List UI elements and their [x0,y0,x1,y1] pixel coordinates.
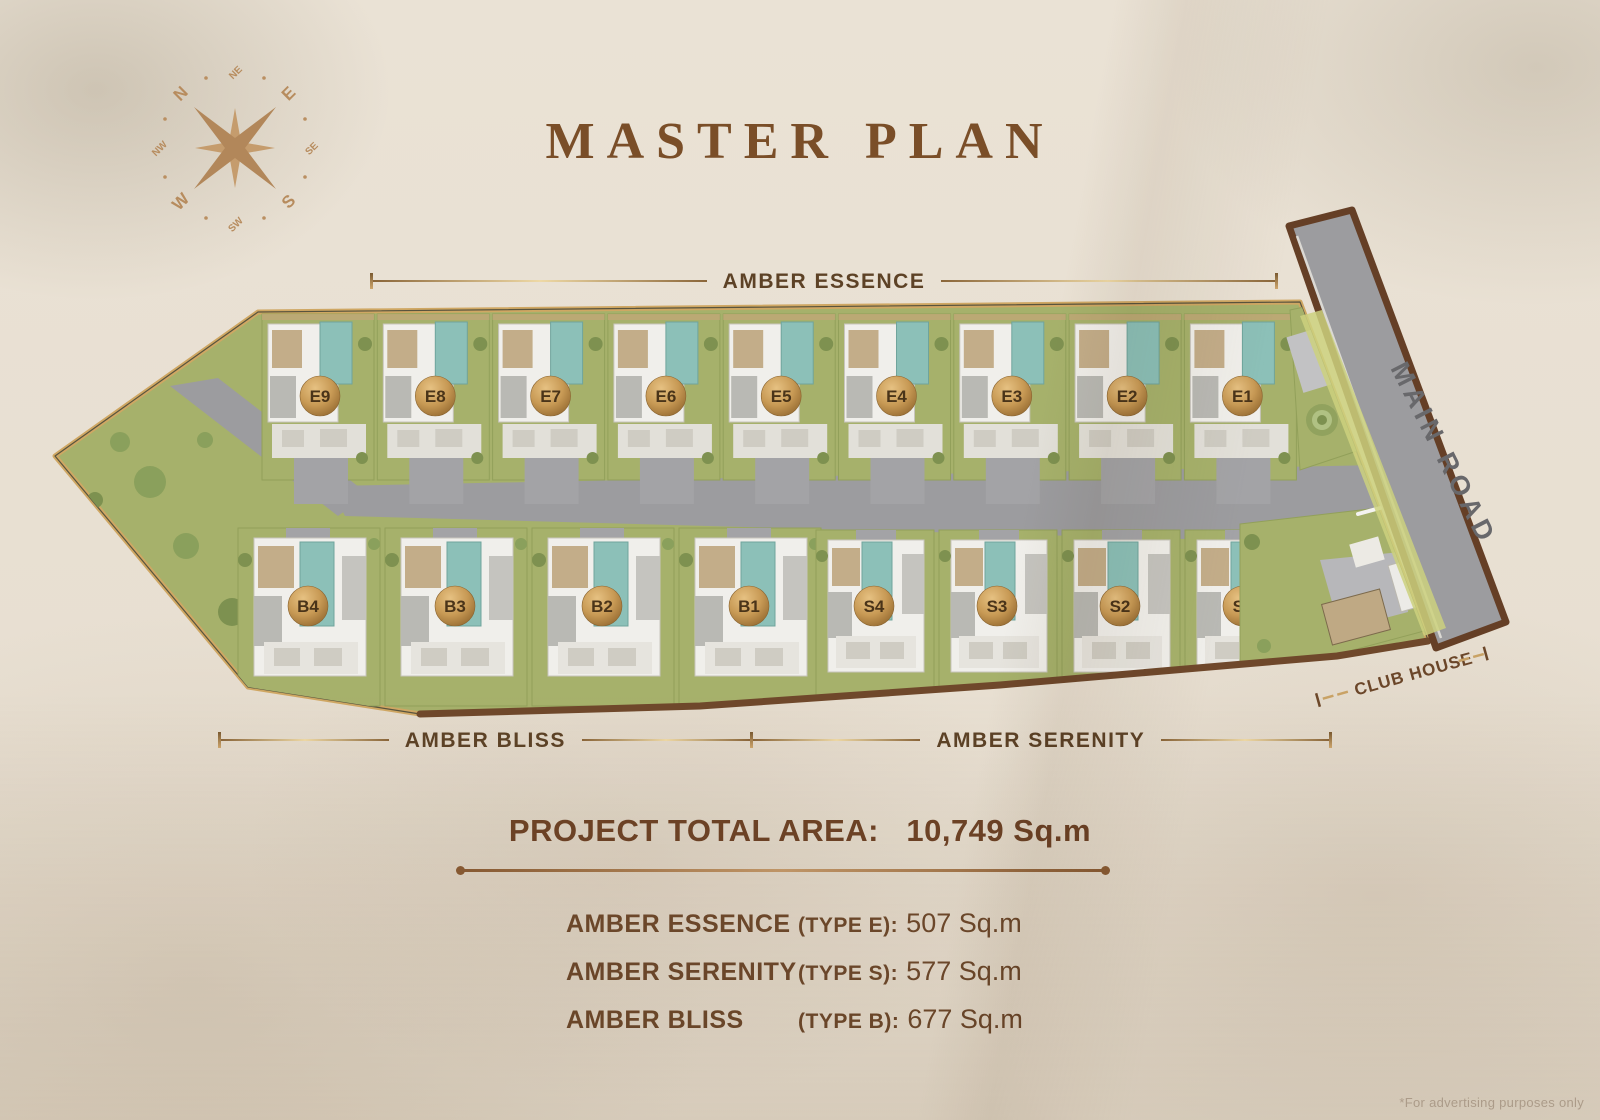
amber-serenity-label: AMBER SERENITY [936,730,1145,751]
villa-plot: E7 [493,314,605,504]
advertising-footnote: *For advertising purposes only [1399,1095,1584,1110]
spec-row-bliss: AMBER BLISS (TYPE B):677 Sq.m [566,1004,1086,1052]
spec-name: AMBER ESSENCE [566,910,798,939]
villa-badge-label: S3 [987,597,1008,616]
spec-name: AMBER BLISS [566,1006,798,1035]
divider-dot [456,866,465,875]
amber-bliss-label: AMBER BLISS [405,730,566,751]
club-house-label: CLUB HOUSE [1352,648,1475,699]
project-total-area: PROJECT TOTAL AREA: 10,749 Sq.m [0,813,1600,849]
spec-type: (TYPE S): [798,962,898,985]
villa-badge-label: E3 [1001,387,1022,406]
divider-line [462,869,1104,872]
villa-badge-label: E8 [425,387,446,406]
spec-row-essence: AMBER ESSENCE (TYPE E):507 Sq.m [566,908,1086,956]
villa-badge-label: E2 [1117,387,1138,406]
spec-value: 577 Sq.m [906,956,1022,986]
villa-badge-label: B2 [591,597,613,616]
spec-type: (TYPE B): [798,1010,899,1033]
total-area-label: PROJECT TOTAL AREA: [509,813,879,848]
villa-plot: E9 [262,314,374,504]
villa-badge-label: E5 [771,387,792,406]
villa-plot: E8 [377,314,489,504]
villa-badge-label: E6 [656,387,677,406]
villa-badge-label: S2 [1110,597,1131,616]
master-plan-poster: N E S W NE SE SW NW MASTER PLAN AMBER ES… [0,0,1600,1120]
spec-type: (TYPE E): [798,914,898,937]
divider-dot [1101,866,1110,875]
villa-plot: S4 [816,530,934,704]
bottom-rows-bracket: AMBER BLISS AMBER SERENITY [218,731,1332,749]
area-spec-list: AMBER ESSENCE (TYPE E):507 Sq.m AMBER SE… [566,908,1086,1052]
bracket-line [1161,739,1329,741]
villa-badge-label: E4 [886,387,907,406]
villa-plot: E4 [839,314,951,504]
total-area-value: 10,749 Sq.m [906,813,1091,848]
spec-row-serenity: AMBER SERENITY (TYPE S):577 Sq.m [566,956,1086,1004]
villa-badge-label: B3 [444,597,466,616]
villa-plot: S3 [939,530,1057,704]
bracket-cap [1329,732,1332,748]
bracket-line [753,739,921,741]
villa-badge-label: E9 [310,387,331,406]
villa-plot: E6 [608,314,720,504]
spec-value: 677 Sq.m [907,1004,1023,1034]
spec-name: AMBER SERENITY [566,958,798,987]
spec-value: 507 Sq.m [906,908,1022,938]
villa-plot: E2 [1069,314,1181,504]
villa-badge-label: S4 [864,597,885,616]
villa-plot: E1 [1184,314,1296,504]
villa-plot: B1 [679,528,821,706]
villa-plot: B2 [532,528,674,706]
villa-plot: B4 [238,528,380,706]
villa-badge-label: B1 [738,597,760,616]
villa-badge-label: E1 [1232,387,1253,406]
villa-badge-label: E7 [540,387,561,406]
villa-plot: E5 [723,314,835,504]
villa-badge-label: B4 [297,597,319,616]
bracket-line [582,739,750,741]
villa-plot: B3 [385,528,527,706]
villa-plot: E3 [954,314,1066,504]
bracket-line [221,739,389,741]
